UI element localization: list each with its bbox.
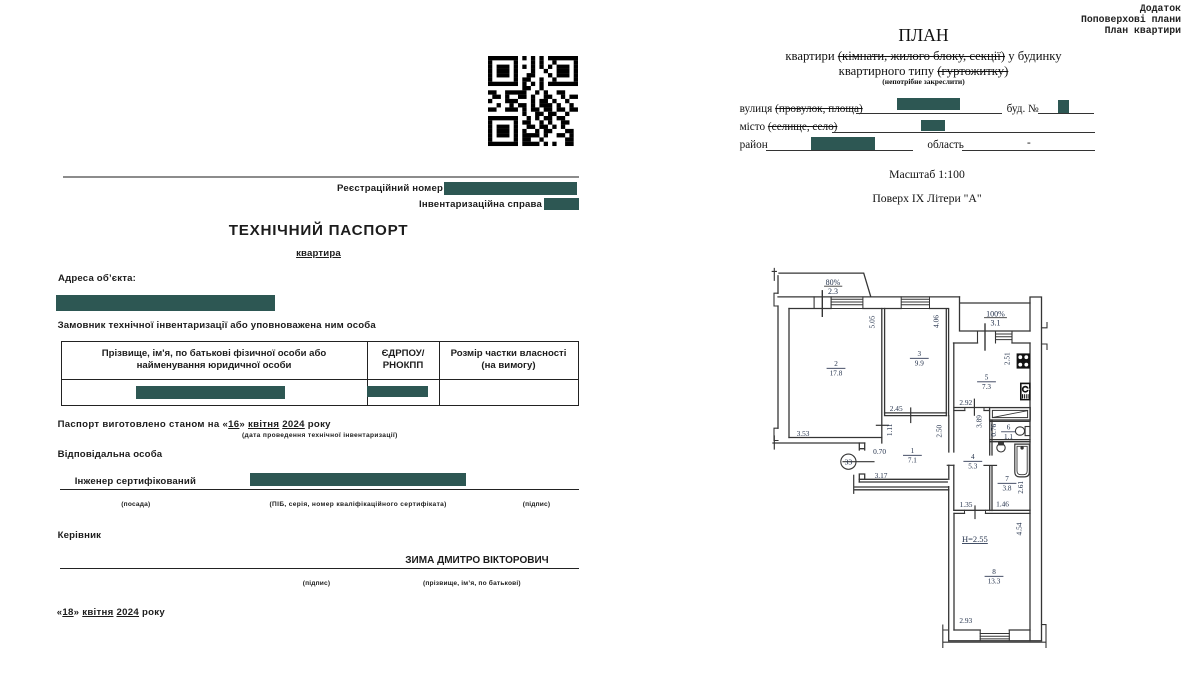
svg-text:6: 6 — [1007, 424, 1011, 432]
svg-text:2.61: 2.61 — [1016, 481, 1025, 494]
svg-text:7.3: 7.3 — [982, 383, 991, 391]
svg-text:5: 5 — [985, 374, 989, 382]
svg-text:8: 8 — [992, 568, 996, 576]
svg-text:3.8: 3.8 — [1003, 485, 1012, 493]
svg-text:100%: 100% — [986, 310, 1005, 319]
svg-text:1.1: 1.1 — [1004, 433, 1013, 441]
svg-text:4: 4 — [971, 453, 975, 461]
svg-text:5.05: 5.05 — [868, 315, 877, 328]
svg-text:2.93: 2.93 — [959, 616, 972, 625]
svg-text:17.8: 17.8 — [830, 370, 843, 378]
svg-text:7: 7 — [1005, 475, 1009, 483]
svg-text:4.54: 4.54 — [1014, 522, 1023, 535]
svg-text:3.53: 3.53 — [797, 429, 810, 438]
svg-text:33: 33 — [845, 457, 853, 466]
svg-text:3.1: 3.1 — [991, 319, 1001, 328]
svg-text:2.45: 2.45 — [890, 404, 903, 413]
svg-text:1.11: 1.11 — [885, 423, 894, 436]
svg-text:Н=2.55: Н=2.55 — [962, 534, 988, 544]
svg-text:0.70: 0.70 — [873, 447, 886, 456]
svg-text:1.46: 1.46 — [996, 500, 1009, 509]
svg-text:2.3: 2.3 — [828, 287, 838, 296]
svg-text:2.51: 2.51 — [1002, 352, 1011, 365]
svg-text:2.92: 2.92 — [959, 398, 972, 407]
svg-text:3.89: 3.89 — [975, 415, 984, 428]
svg-text:5.3: 5.3 — [968, 463, 977, 471]
svg-text:3: 3 — [918, 350, 922, 358]
svg-text:9.9: 9.9 — [915, 360, 924, 368]
svg-text:4.06: 4.06 — [932, 315, 941, 328]
svg-text:7.1: 7.1 — [908, 457, 917, 465]
svg-text:1.35: 1.35 — [960, 500, 973, 509]
svg-text:3.17: 3.17 — [875, 471, 888, 480]
svg-text:1: 1 — [911, 447, 915, 455]
svg-text:13.3: 13.3 — [988, 578, 1001, 586]
svg-text:80%: 80% — [826, 278, 841, 287]
svg-text:2: 2 — [834, 360, 838, 368]
svg-text:0.76: 0.76 — [989, 423, 998, 436]
svg-text:2.50: 2.50 — [935, 424, 944, 437]
